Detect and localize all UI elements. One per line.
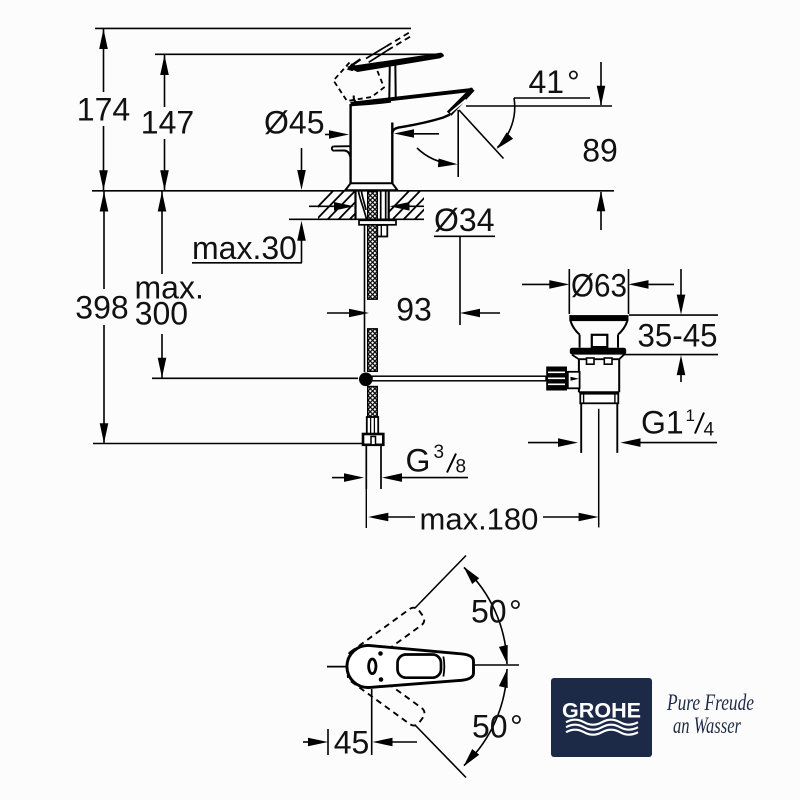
svg-text:147: 147	[141, 105, 194, 141]
svg-text:max.30: max.30	[192, 230, 297, 266]
svg-text:89: 89	[582, 133, 618, 169]
svg-text:41: 41	[529, 64, 565, 100]
svg-text:°: °	[509, 594, 522, 630]
svg-text:93: 93	[396, 292, 432, 328]
svg-text:Ø63: Ø63	[571, 268, 627, 304]
svg-text:45: 45	[334, 725, 370, 761]
svg-text:max.180: max.180	[420, 502, 539, 537]
svg-text:4: 4	[704, 420, 715, 441]
svg-text:8: 8	[456, 457, 467, 478]
svg-text:398: 398	[75, 290, 128, 326]
svg-text:3: 3	[434, 442, 445, 463]
svg-text:an Wasser: an Wasser	[673, 713, 742, 738]
svg-text:1: 1	[686, 406, 695, 425]
svg-text:G: G	[406, 443, 431, 479]
svg-text:35-45: 35-45	[638, 318, 718, 354]
svg-text:Ø45: Ø45	[264, 105, 324, 141]
svg-text:300: 300	[135, 296, 188, 332]
svg-text:174: 174	[77, 92, 130, 128]
svg-text:°: °	[567, 64, 580, 100]
svg-text:°: °	[510, 709, 523, 745]
svg-text:50: 50	[471, 594, 507, 630]
svg-text:G1: G1	[641, 405, 684, 441]
svg-text:Ø34: Ø34	[434, 202, 494, 238]
svg-text:Pure Freude: Pure Freude	[666, 690, 754, 715]
svg-text:50: 50	[472, 709, 508, 745]
